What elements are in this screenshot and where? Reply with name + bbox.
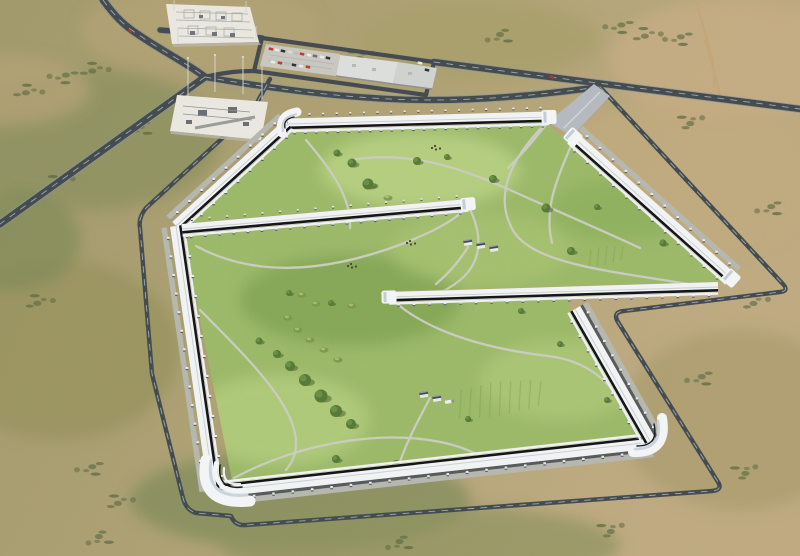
building-end-cap [541, 110, 556, 124]
shrub [348, 303, 357, 308]
building-end-cap [381, 290, 396, 303]
building-end-cap [460, 197, 476, 211]
shrub [312, 301, 321, 306]
shrub [384, 195, 393, 200]
shrub [284, 315, 293, 320]
campus-rendering [0, 0, 800, 556]
substation-switchyard-north [166, 0, 261, 47]
shrub [294, 327, 303, 332]
shrub [320, 347, 329, 352]
shrub [334, 357, 343, 362]
shrub [298, 292, 307, 297]
aerial-render-canvas [0, 0, 800, 556]
shrub [306, 337, 315, 342]
